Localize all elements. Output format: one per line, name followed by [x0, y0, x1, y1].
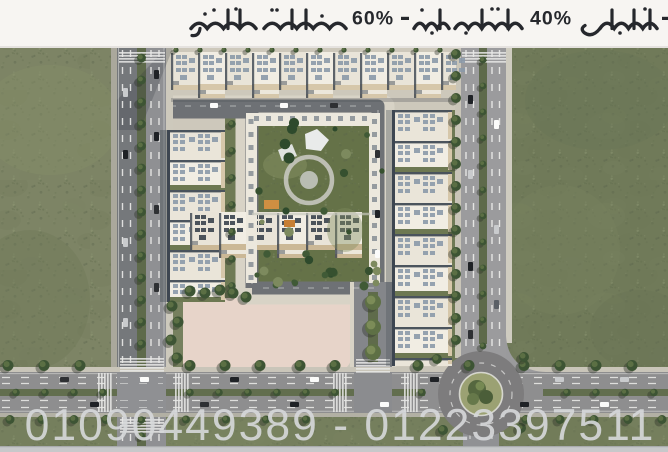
svg-text:01090449389 - 01223397511: 01090449389 - 01223397511	[25, 401, 656, 450]
svg-text:40%: 40%	[530, 8, 572, 30]
svg-text:60%: 60%	[352, 8, 394, 30]
